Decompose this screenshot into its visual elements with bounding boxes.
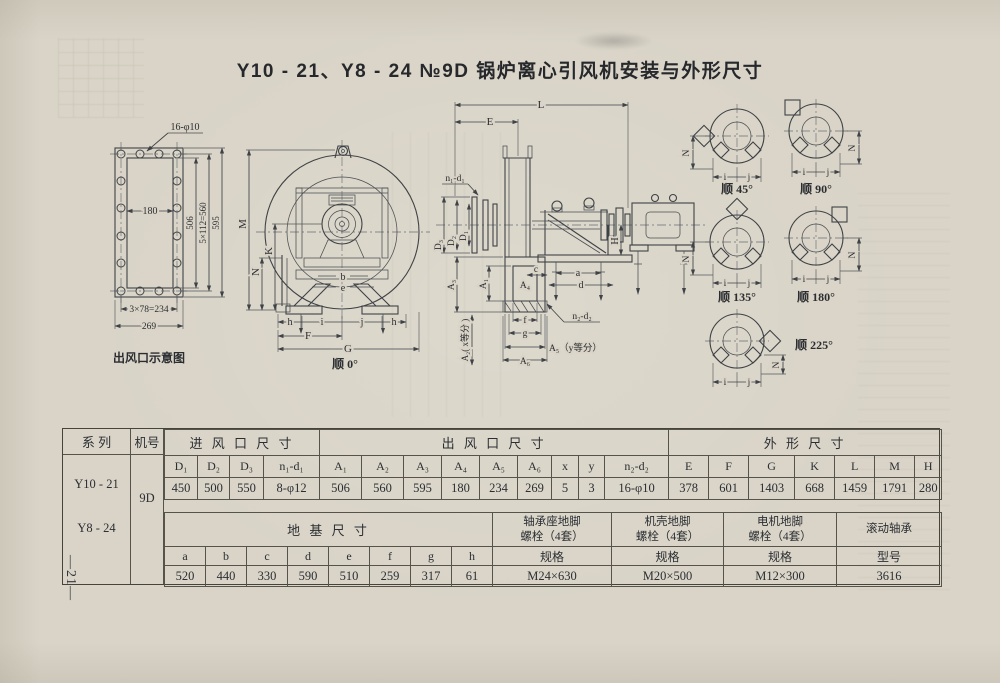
bolt-header-casing: 机壳地脚 螺栓（4套）: [612, 513, 724, 547]
table-cell: 1403: [749, 478, 795, 500]
table-cell: 510: [329, 566, 370, 587]
holes-note-label: 16-φ10: [170, 122, 199, 133]
dim-label-180: 180: [143, 206, 158, 217]
model-subheader: 型号: [837, 547, 942, 566]
col-header: c: [247, 547, 288, 566]
machine-no-column: 机号 9D: [131, 429, 164, 584]
col-header: f: [370, 547, 411, 566]
table-cell: 317: [411, 566, 452, 587]
dim-label-f: f: [523, 315, 527, 326]
col-header: A₆: [518, 456, 552, 478]
table-cell: 1459: [835, 478, 875, 500]
col-header: a: [165, 547, 206, 566]
table-cell: 1791: [875, 478, 915, 500]
col-header: g: [411, 547, 452, 566]
col-header: y: [579, 456, 605, 478]
col-header: D₁: [165, 456, 198, 478]
dim-label-N: N: [682, 149, 692, 156]
dim-label-A6: A₆: [520, 357, 530, 367]
col-header: E: [669, 456, 709, 478]
col-header: d: [288, 547, 329, 566]
dim-label-N: N: [250, 268, 262, 276]
col-header: G: [749, 456, 795, 478]
machine-no-value: 9D: [131, 491, 163, 506]
n2-d2-label: n₂-d₂: [572, 312, 591, 322]
dim-label-j: j: [747, 378, 751, 388]
table-cell: 280: [915, 478, 942, 500]
table-cell: 16-φ10: [605, 478, 669, 500]
dim-label-j: j: [826, 275, 830, 285]
fan-front-view: b e M N K h i j h F G 顺 0°: [237, 140, 430, 371]
table-cell: 520: [165, 566, 206, 587]
table-cell: 269: [518, 478, 552, 500]
dim-label-i: i: [724, 279, 727, 289]
machine-no-header: 机号: [131, 429, 163, 455]
orientation-135-caption: 顺 135°: [718, 289, 756, 304]
orientation-180: N i j 顺 180°: [784, 206, 862, 304]
technical-drawings: 180 506 5×112=560 595 3×78=234 269 16-φ1…: [0, 0, 1000, 425]
col-header: A₄: [442, 456, 480, 478]
orientation-180-caption: 顺 180°: [797, 289, 835, 304]
dim-label-j: j: [360, 317, 364, 328]
table-cell: 330: [247, 566, 288, 587]
dim-label-e: e: [341, 283, 346, 294]
col-header: K: [795, 456, 835, 478]
table-cell: 61: [452, 566, 493, 587]
spec-subheader: 规格: [493, 547, 612, 566]
dim-label-N: N: [682, 255, 692, 262]
col-header: n₂-d₂: [605, 456, 669, 478]
dim-label-i: i: [321, 317, 324, 328]
group-header-outlet: 出 风 口 尺 寸: [320, 430, 669, 456]
col-header: D₂: [198, 456, 230, 478]
dim-label-i: i: [803, 168, 806, 178]
orientation-135: N i j 顺 135°: [682, 198, 769, 304]
col-header: A₂: [362, 456, 404, 478]
dim-label-A5: A₅（y等分）: [549, 342, 602, 354]
col-header: h: [452, 547, 493, 566]
col-header: x: [552, 456, 579, 478]
outlet-box: A₄: [503, 257, 547, 312]
bearing-model-value: 3616: [837, 566, 942, 587]
dim-label-A1: A₁: [479, 279, 489, 289]
dim-label-234: 3×78=234: [129, 305, 168, 315]
table-cell: 506: [320, 478, 362, 500]
dim-label-E: E: [487, 116, 494, 128]
dim-label-D3: D₃: [434, 240, 444, 250]
table-cell: 234: [480, 478, 518, 500]
orientation-45: N i j 顺 45°: [682, 104, 769, 196]
dim-label-i: i: [724, 378, 727, 388]
n1-d1-label: n₁-d₁: [445, 174, 464, 184]
orientation-90: N i j 顺 90°: [784, 99, 862, 196]
series-value-1: Y10 - 21: [63, 477, 130, 492]
series-column: 系 列 Y10 - 21 Y8 - 24: [63, 429, 131, 584]
col-header: L: [835, 456, 875, 478]
table-cell: 550: [230, 478, 264, 500]
bolt-header-bearing-seat: 轴承座地脚 螺栓（4套）: [493, 513, 612, 547]
table-cell: 3: [579, 478, 605, 500]
motor: [630, 195, 694, 296]
dim-label-F: F: [305, 330, 311, 342]
table-cell: 590: [288, 566, 329, 587]
flange-caption: 出风口示意图: [113, 350, 185, 365]
table-cell: 595: [404, 478, 442, 500]
dim-label-h-right: h: [392, 317, 397, 328]
table-cell: 500: [198, 478, 230, 500]
series-header: 系 列: [63, 429, 130, 455]
orientation-225-caption: 顺 225°: [795, 337, 833, 352]
dim-label-506: 506: [185, 216, 195, 230]
dim-label-d: d: [579, 280, 584, 291]
dim-label-A2: A₂( x等分 ): [459, 319, 470, 362]
dim-label-269: 269: [142, 322, 157, 332]
dim-label-h-left: h: [288, 317, 293, 328]
dim-label-595: 595: [211, 216, 221, 230]
col-header: A₁: [320, 456, 362, 478]
table-cell: 180: [442, 478, 480, 500]
orientation-90-caption: 顺 90°: [800, 181, 832, 196]
dim-label-A3: A₃: [447, 280, 457, 290]
outlet-flange-drawing: 180 506 5×112=560 595 3×78=234 269 16-φ1…: [110, 122, 225, 365]
col-header: e: [329, 547, 370, 566]
group-header-outline: 外 形 尺 寸: [669, 430, 942, 456]
dim-label-K: K: [263, 247, 275, 255]
col-header: H: [915, 456, 942, 478]
spec-subheader: 规格: [612, 547, 724, 566]
table-cell: 5: [552, 478, 579, 500]
bolt-spec-value: M20×500: [612, 566, 724, 587]
dimension-table: 系 列 Y10 - 21 Y8 - 24 机号 9D 进 风 口 尺 寸 出 风…: [62, 428, 940, 585]
bolt-header-motor: 电机地脚 螺栓（4套）: [724, 513, 837, 547]
group-header-foundation: 地 基 尺 寸: [165, 513, 493, 547]
spec-subheader: 规格: [724, 547, 837, 566]
dim-label-g: g: [523, 329, 528, 339]
dim-label-L: L: [538, 99, 545, 111]
dim-label-N: N: [772, 361, 782, 368]
orientation-225: N i j 顺 225°: [705, 309, 833, 388]
bolt-spec-value: M12×300: [724, 566, 837, 587]
fan-side-view: L E n₁-d₁ D₃ D₂ D₁: [434, 99, 706, 367]
table-cell: 440: [206, 566, 247, 587]
table-cell: 8-φ12: [264, 478, 320, 500]
dim-label-560: 5×112=560: [198, 202, 208, 244]
dim-label-c: c: [534, 265, 538, 275]
dim-label-j: j: [826, 168, 830, 178]
table-cell: 378: [669, 478, 709, 500]
table-cell: 259: [370, 566, 411, 587]
col-header: M: [875, 456, 915, 478]
dim-label-D2: D₂: [447, 236, 457, 246]
group-header-inlet: 进 风 口 尺 寸: [165, 430, 320, 456]
dim-label-b: b: [341, 272, 346, 283]
col-header: n₁-d₁: [264, 456, 320, 478]
col-header: A₃: [404, 456, 442, 478]
lower-dimension-table: 地 基 尺 寸 轴承座地脚 螺栓（4套） 机壳地脚 螺栓（4套） 电机地脚 螺栓…: [164, 512, 942, 587]
dim-label-N: N: [848, 251, 858, 258]
dim-label-j: j: [747, 279, 751, 289]
rolling-bearing-header: 滚动轴承: [837, 513, 942, 547]
col-header: D₃: [230, 456, 264, 478]
table-cell: 560: [362, 478, 404, 500]
dim-label-G: G: [344, 343, 352, 355]
col-header: A₅: [480, 456, 518, 478]
series-value-2: Y8 - 24: [63, 521, 130, 536]
dim-label-D1: D₁: [459, 231, 469, 241]
table-cell: 450: [165, 478, 198, 500]
dim-label-A4: A₄: [520, 281, 530, 291]
orientation-45-caption: 顺 45°: [721, 181, 753, 196]
dim-label-N: N: [848, 144, 858, 151]
col-header: F: [709, 456, 749, 478]
dim-label-a: a: [576, 268, 581, 279]
col-header: b: [206, 547, 247, 566]
bolt-spec-value: M24×630: [493, 566, 612, 587]
table-cell: 668: [795, 478, 835, 500]
upper-dimension-table: 进 风 口 尺 寸 出 风 口 尺 寸 外 形 尺 寸 D₁ D₂ D₃ n₁-…: [164, 429, 942, 500]
table-cell: 601: [709, 478, 749, 500]
dim-label-i: i: [803, 275, 806, 285]
dim-label-M: M: [237, 219, 249, 229]
front-view-caption: 顺 0°: [332, 356, 358, 371]
dim-label-H: H: [610, 237, 621, 244]
